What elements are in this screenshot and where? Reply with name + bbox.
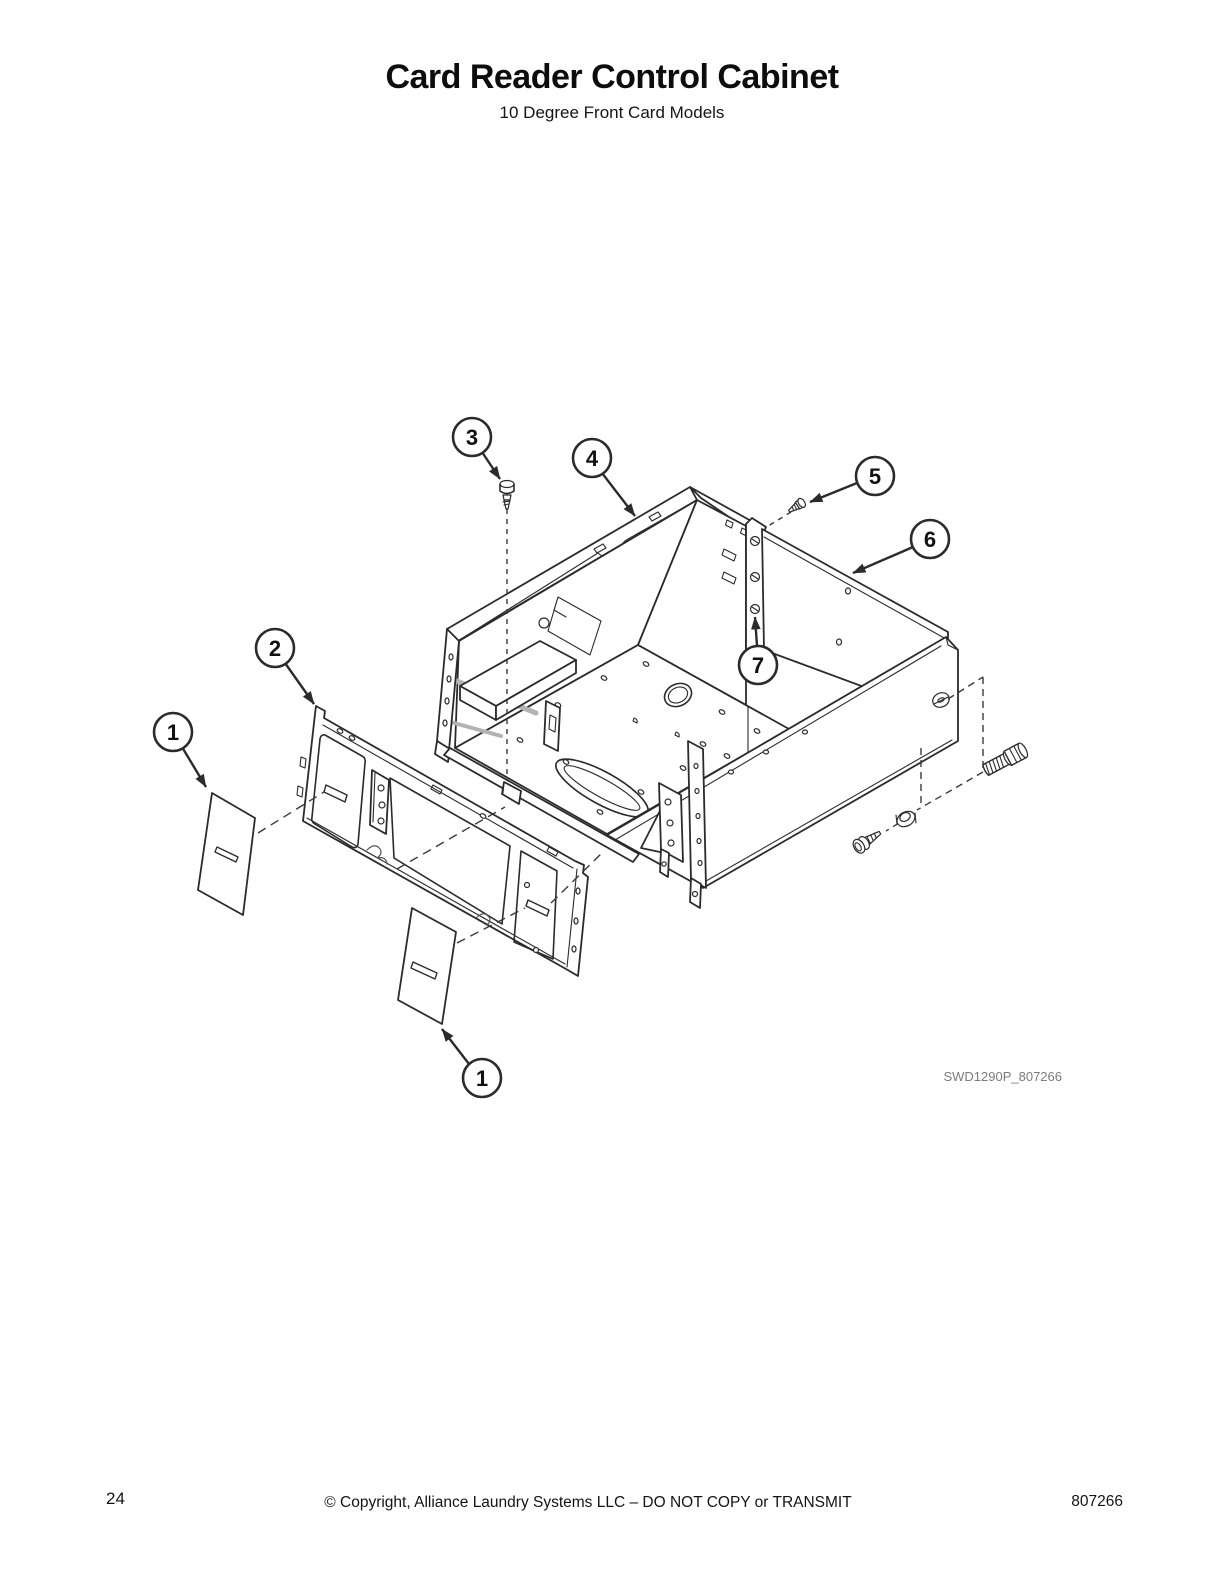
channel-screw-1 [751, 537, 760, 546]
screw-3 [500, 481, 514, 510]
callout-6: 6 [853, 520, 949, 573]
shoulder-bolt [981, 742, 1029, 778]
channel-screw-3 [751, 605, 760, 614]
callout-number: 1 [167, 720, 179, 745]
callout-number: 3 [466, 425, 478, 450]
callout-number: 7 [752, 653, 764, 678]
hinge-bracket [370, 770, 389, 834]
card-plate-bottom [398, 908, 456, 1024]
screw-5-axis [765, 512, 791, 528]
washer-screw [851, 826, 884, 855]
callout-number: 6 [924, 527, 936, 552]
manual-page: Card Reader Control Cabinet 10 Degree Fr… [0, 0, 1224, 1584]
front-right-strip [688, 741, 706, 908]
exploded-diagram: 1 2 3 4 5 6 7 [0, 0, 1224, 1584]
callout-number: 5 [869, 464, 881, 489]
callout-5: 5 [810, 457, 894, 502]
callout-3: 3 [453, 418, 500, 479]
callout-1-bottom: 1 [442, 1029, 501, 1097]
callout-2: 2 [256, 629, 314, 704]
figure-id: SWD1290P_807266 [943, 1069, 1062, 1084]
flange-nut [894, 808, 917, 830]
callout-number: 2 [269, 636, 281, 661]
card-plate-top [198, 793, 255, 915]
callout-number: 1 [476, 1066, 488, 1091]
callout-4: 4 [573, 439, 635, 516]
footer-document-number: 807266 [1071, 1493, 1123, 1511]
support-tab [544, 701, 560, 751]
callout-number: 4 [586, 446, 599, 471]
channel-screw-2 [751, 573, 760, 582]
callout-1-top: 1 [154, 713, 206, 787]
footer-copyright: © Copyright, Alliance Laundry Systems LL… [0, 1494, 1176, 1512]
